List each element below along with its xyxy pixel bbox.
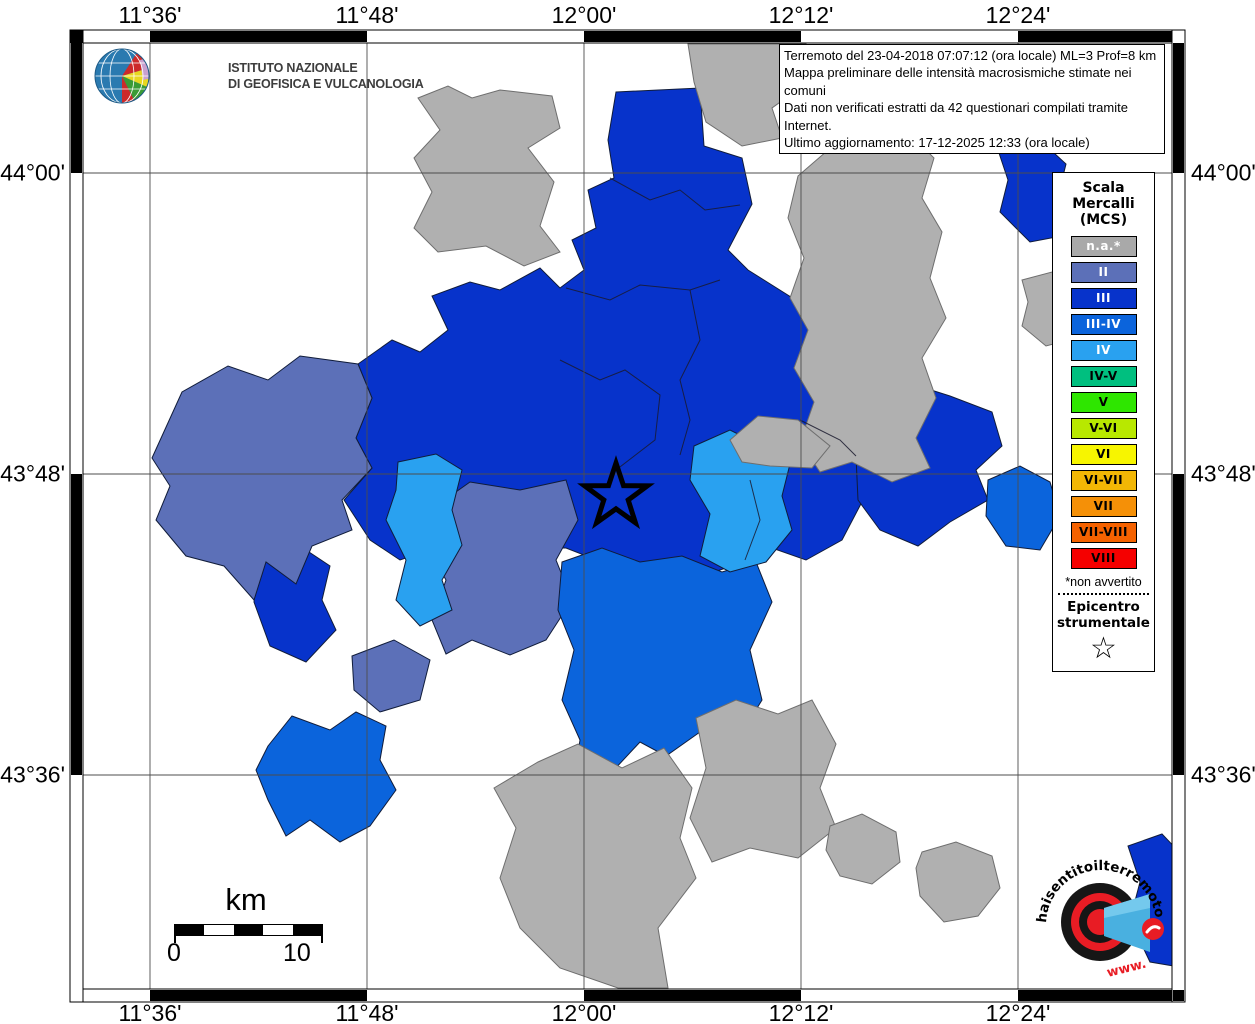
region-gray-nw xyxy=(414,86,560,266)
lat-label-left-2: 43°36' xyxy=(0,762,65,789)
lon-label-bottom-3: 12°12' xyxy=(769,1000,834,1024)
scale-bar: km 0 10 xyxy=(158,882,334,969)
lat-label-left-0: 44°00' xyxy=(0,160,65,187)
legend-swatch-VIII: VIII xyxy=(1071,548,1137,569)
scale-bar-unit: km xyxy=(158,882,334,918)
map-page: haisentitoilterremoto.it www. Terremoto … xyxy=(0,0,1255,1024)
legend-swatch-IV: IV xyxy=(1071,340,1137,361)
legend-epicenter-label: Epicentro strumentale xyxy=(1053,599,1154,631)
event-info-box: Terremoto del 23-04-2018 07:07:12 (ora l… xyxy=(779,44,1165,154)
legend-swatch-n.a.*: n.a.* xyxy=(1071,236,1137,257)
lon-label-top-3: 12°12' xyxy=(769,2,834,29)
scale-bar-segments xyxy=(174,924,323,936)
legend-swatch-VI: VI xyxy=(1071,444,1137,465)
legend-title: Scala Mercalli (MCS) xyxy=(1053,180,1154,228)
lat-label-left-1: 43°48' xyxy=(0,461,65,488)
lon-label-bottom-4: 12°24' xyxy=(986,1000,1051,1024)
lat-label-right-0: 44°00' xyxy=(1191,160,1255,187)
legend-swatch-IV-V: IV-V xyxy=(1071,366,1137,387)
legend-swatch-VI-VII: VI-VII xyxy=(1071,470,1137,491)
info-line-updated: Ultimo aggiornamento: 17-12-2025 12:33 (… xyxy=(784,134,1160,151)
epicenter-legend-star-icon: ☆ xyxy=(1053,633,1154,665)
info-line-map-type: Mappa preliminare delle intensità macros… xyxy=(784,64,1160,99)
legend-swatch-V-VI: V-VI xyxy=(1071,418,1137,439)
legend-swatch-VII: VII xyxy=(1071,496,1137,517)
lon-label-bottom-0: 11°36' xyxy=(118,1000,181,1024)
lon-label-top-2: 12°00' xyxy=(552,2,617,29)
lat-label-right-1: 43°48' xyxy=(1191,461,1255,488)
legend-swatch-III-IV: III-IV xyxy=(1071,314,1137,335)
legend-swatch-V: V xyxy=(1071,392,1137,413)
info-line-event: Terremoto del 23-04-2018 07:07:12 (ora l… xyxy=(784,47,1160,64)
legend-swatch-III: III xyxy=(1071,288,1137,309)
lon-label-top-4: 12°24' xyxy=(986,2,1051,29)
scale-bar-start: 0 xyxy=(167,939,181,968)
ingv-wordmark: ISTITUTO NAZIONALE DI GEOFISICA E VULCAN… xyxy=(228,60,424,92)
info-line-data-source: Dati non verificati estratti da 42 quest… xyxy=(784,99,1160,134)
lon-label-bottom-2: 12°00' xyxy=(552,1000,617,1024)
legend-swatch-VII-VIII: VII-VIII xyxy=(1071,522,1137,543)
lat-label-right-2: 43°36' xyxy=(1191,762,1255,789)
legend-footnote: *non avvertito xyxy=(1053,575,1154,589)
legend-swatch-II: II xyxy=(1071,262,1137,283)
intensity-legend: Scala Mercalli (MCS) n.a.*IIIIIIII-IVIVI… xyxy=(1052,172,1155,672)
lon-label-top-0: 11°36' xyxy=(118,2,181,29)
lon-label-top-1: 11°48' xyxy=(335,2,398,29)
legend-divider xyxy=(1058,593,1149,595)
legend-swatches: n.a.*IIIIIIII-IVIVIV-VVV-VIVIVI-VIIVIIVI… xyxy=(1053,236,1154,569)
scale-bar-end: 10 xyxy=(283,939,311,968)
region-gray-south2 xyxy=(690,700,836,862)
lon-label-bottom-1: 11°48' xyxy=(335,1000,398,1024)
